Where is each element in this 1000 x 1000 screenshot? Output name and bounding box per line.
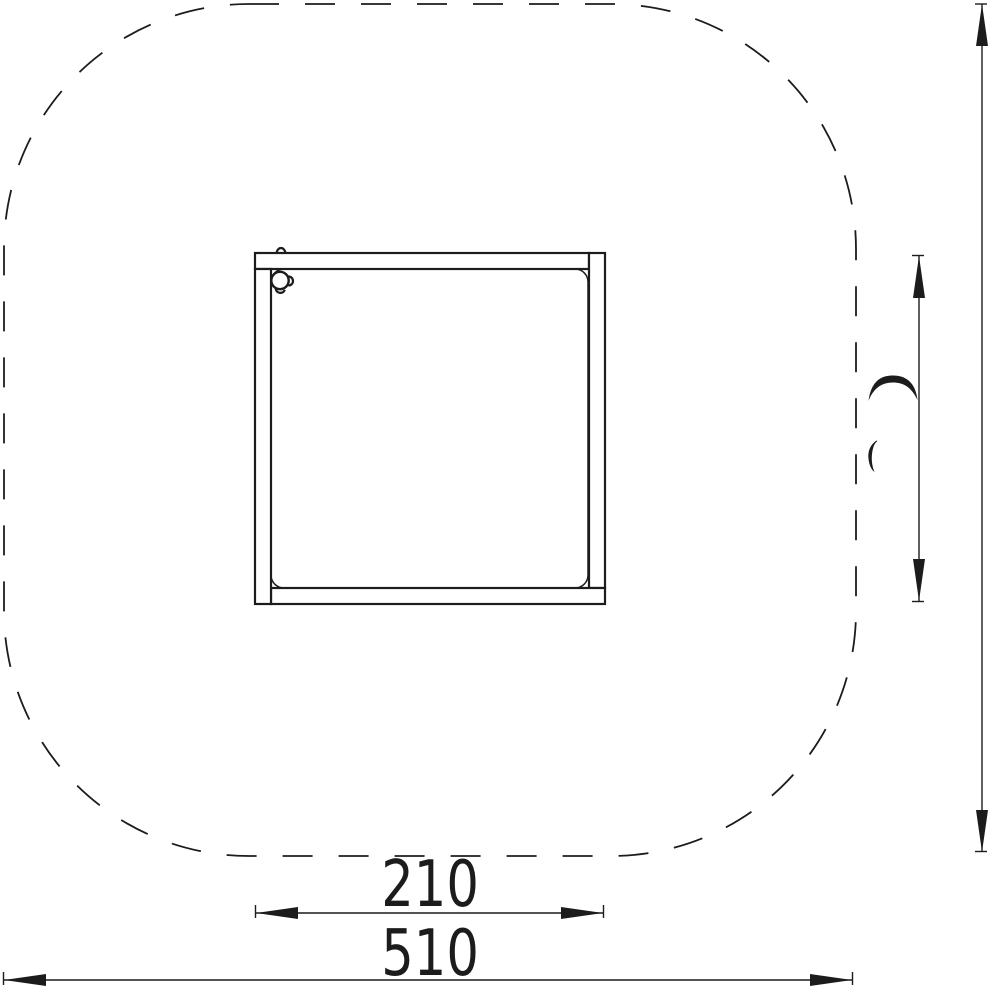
dim-arrow-top — [913, 256, 925, 298]
frame-left-plank — [255, 269, 271, 604]
dim-arrow-bottom — [976, 810, 988, 852]
frame-bottom-plank — [271, 588, 605, 604]
product-width-label: 210 — [256, 853, 604, 917]
corner-cap — [271, 272, 288, 289]
product-height-dimension — [912, 256, 925, 602]
frame-top-plank — [255, 253, 589, 269]
zone-height-dimension — [975, 4, 988, 852]
product-height-label-fragments — [868, 376, 917, 473]
label-fragment-hook — [868, 441, 877, 473]
dim-arrow-left — [4, 974, 46, 986]
zone-width-value: 510 — [381, 922, 479, 986]
corner-cap-assembly — [271, 272, 293, 293]
safety-zone-outline — [4, 4, 856, 856]
sandbox-liner — [271, 269, 588, 588]
label-fragment-arc — [869, 376, 918, 402]
sandbox-frame — [255, 253, 605, 604]
frame-right-plank — [589, 253, 605, 588]
drawing-linework — [0, 0, 1000, 1000]
dim-arrow-top — [976, 4, 988, 46]
technical-drawing-canvas: 210 510 — [0, 0, 1000, 1000]
product-width-value: 210 — [381, 853, 479, 917]
dim-arrow-right — [810, 974, 852, 986]
zone-width-label: 510 — [256, 922, 604, 986]
dim-arrow-bottom — [913, 559, 925, 601]
